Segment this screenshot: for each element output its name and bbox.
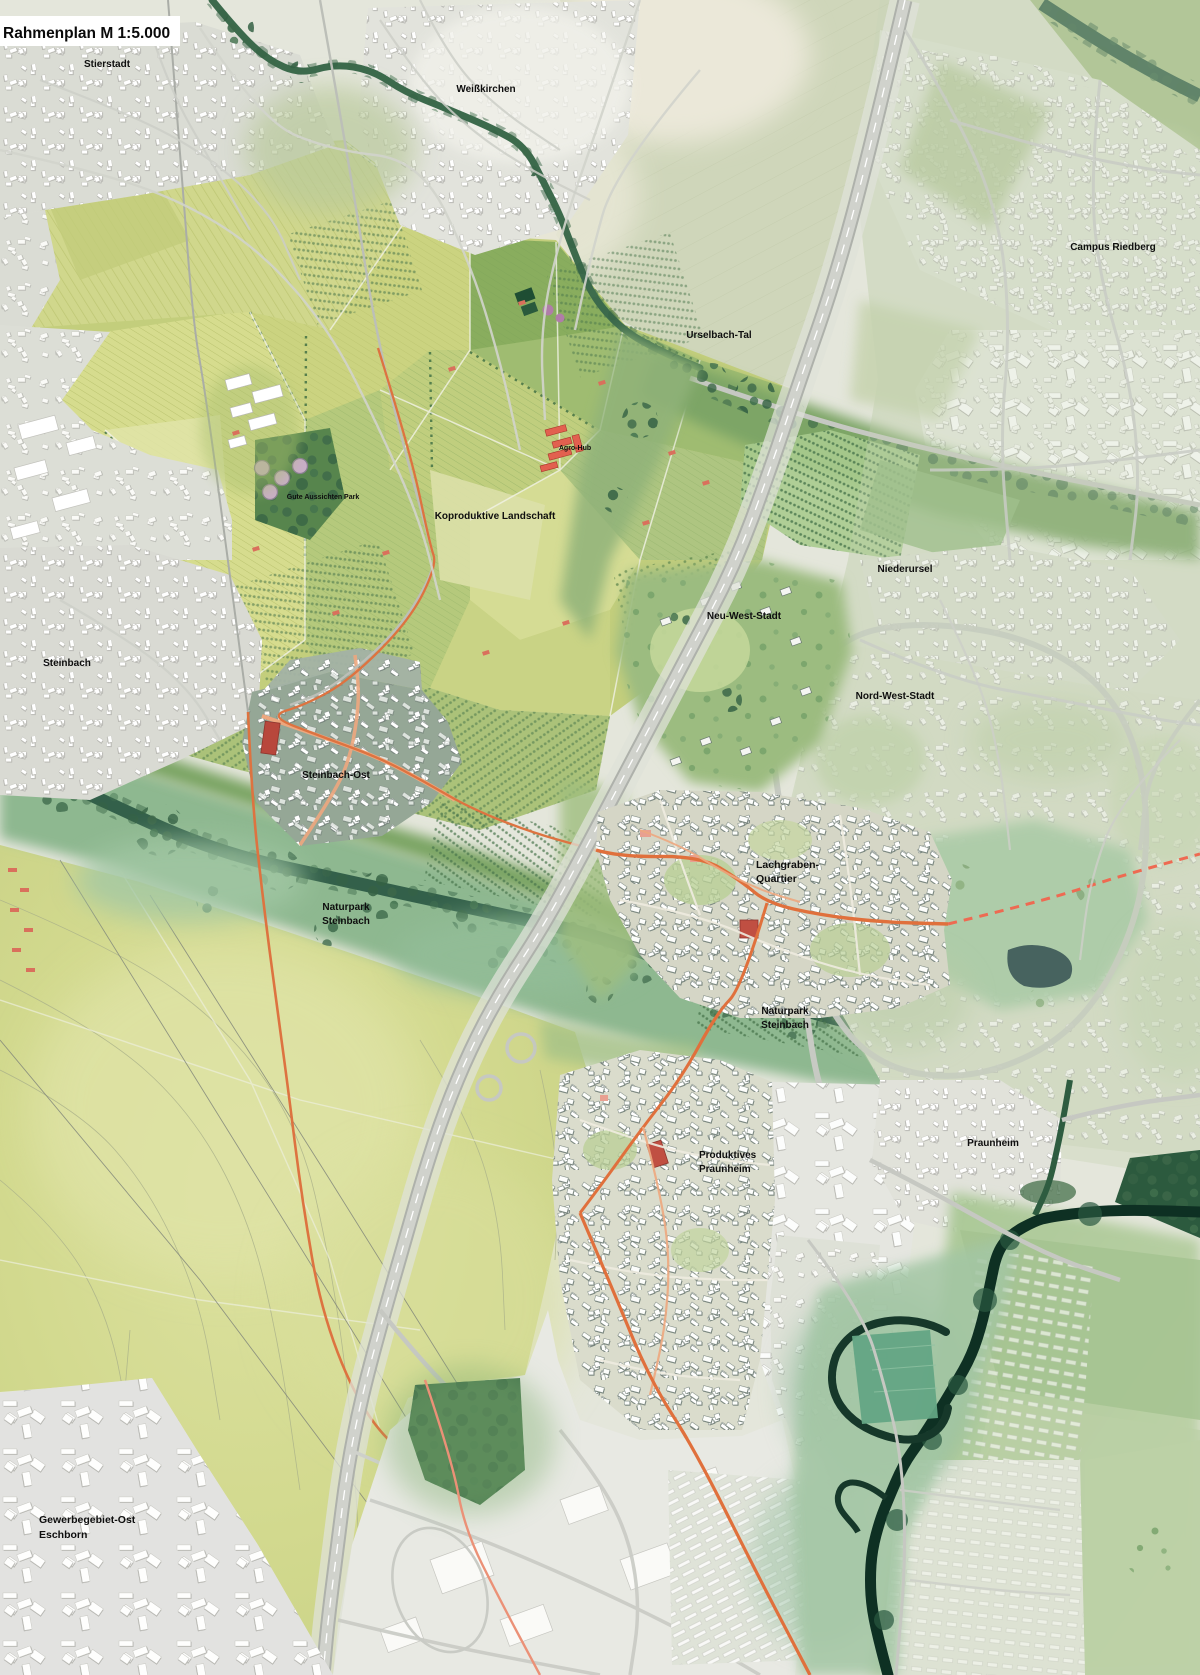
svg-text:Lachgraben-: Lachgraben- — [756, 859, 820, 871]
svg-text:Rahmenplan M 1:5.000: Rahmenplan M 1:5.000 — [3, 25, 170, 42]
svg-text:Praunheim: Praunheim — [967, 1138, 1019, 1149]
svg-text:Niederursel: Niederursel — [877, 564, 932, 575]
svg-text:Quartier: Quartier — [756, 873, 797, 885]
svg-text:Naturpark: Naturpark — [322, 902, 370, 913]
svg-text:Campus Riedberg: Campus Riedberg — [1070, 242, 1156, 253]
svg-text:Steinbach: Steinbach — [322, 916, 370, 927]
svg-text:Nord-West-Stadt: Nord-West-Stadt — [856, 691, 935, 702]
svg-text:Neu-West-Stadt: Neu-West-Stadt — [707, 611, 782, 622]
svg-text:Eschborn: Eschborn — [39, 1529, 87, 1541]
svg-text:Steinbach: Steinbach — [43, 658, 91, 669]
svg-text:Gewerbegebiet-Ost: Gewerbegebiet-Ost — [39, 1514, 136, 1526]
svg-text:Produktives: Produktives — [699, 1150, 757, 1161]
svg-text:Steinbach: Steinbach — [761, 1020, 809, 1031]
svg-text:Praunheim: Praunheim — [699, 1164, 751, 1175]
svg-text:Koproduktive Landschaft: Koproduktive Landschaft — [435, 511, 556, 522]
svg-text:Weißkirchen: Weißkirchen — [456, 84, 515, 95]
svg-text:Steinbach-Ost: Steinbach-Ost — [302, 770, 370, 781]
svg-text:Urselbach-Tal: Urselbach-Tal — [686, 330, 752, 341]
svg-text:Naturpark: Naturpark — [761, 1006, 809, 1017]
svg-text:Stierstadt: Stierstadt — [84, 59, 131, 70]
svg-text:Agro-Hub: Agro-Hub — [559, 445, 591, 452]
svg-text:Gute Aussichten Park: Gute Aussichten Park — [287, 494, 360, 501]
